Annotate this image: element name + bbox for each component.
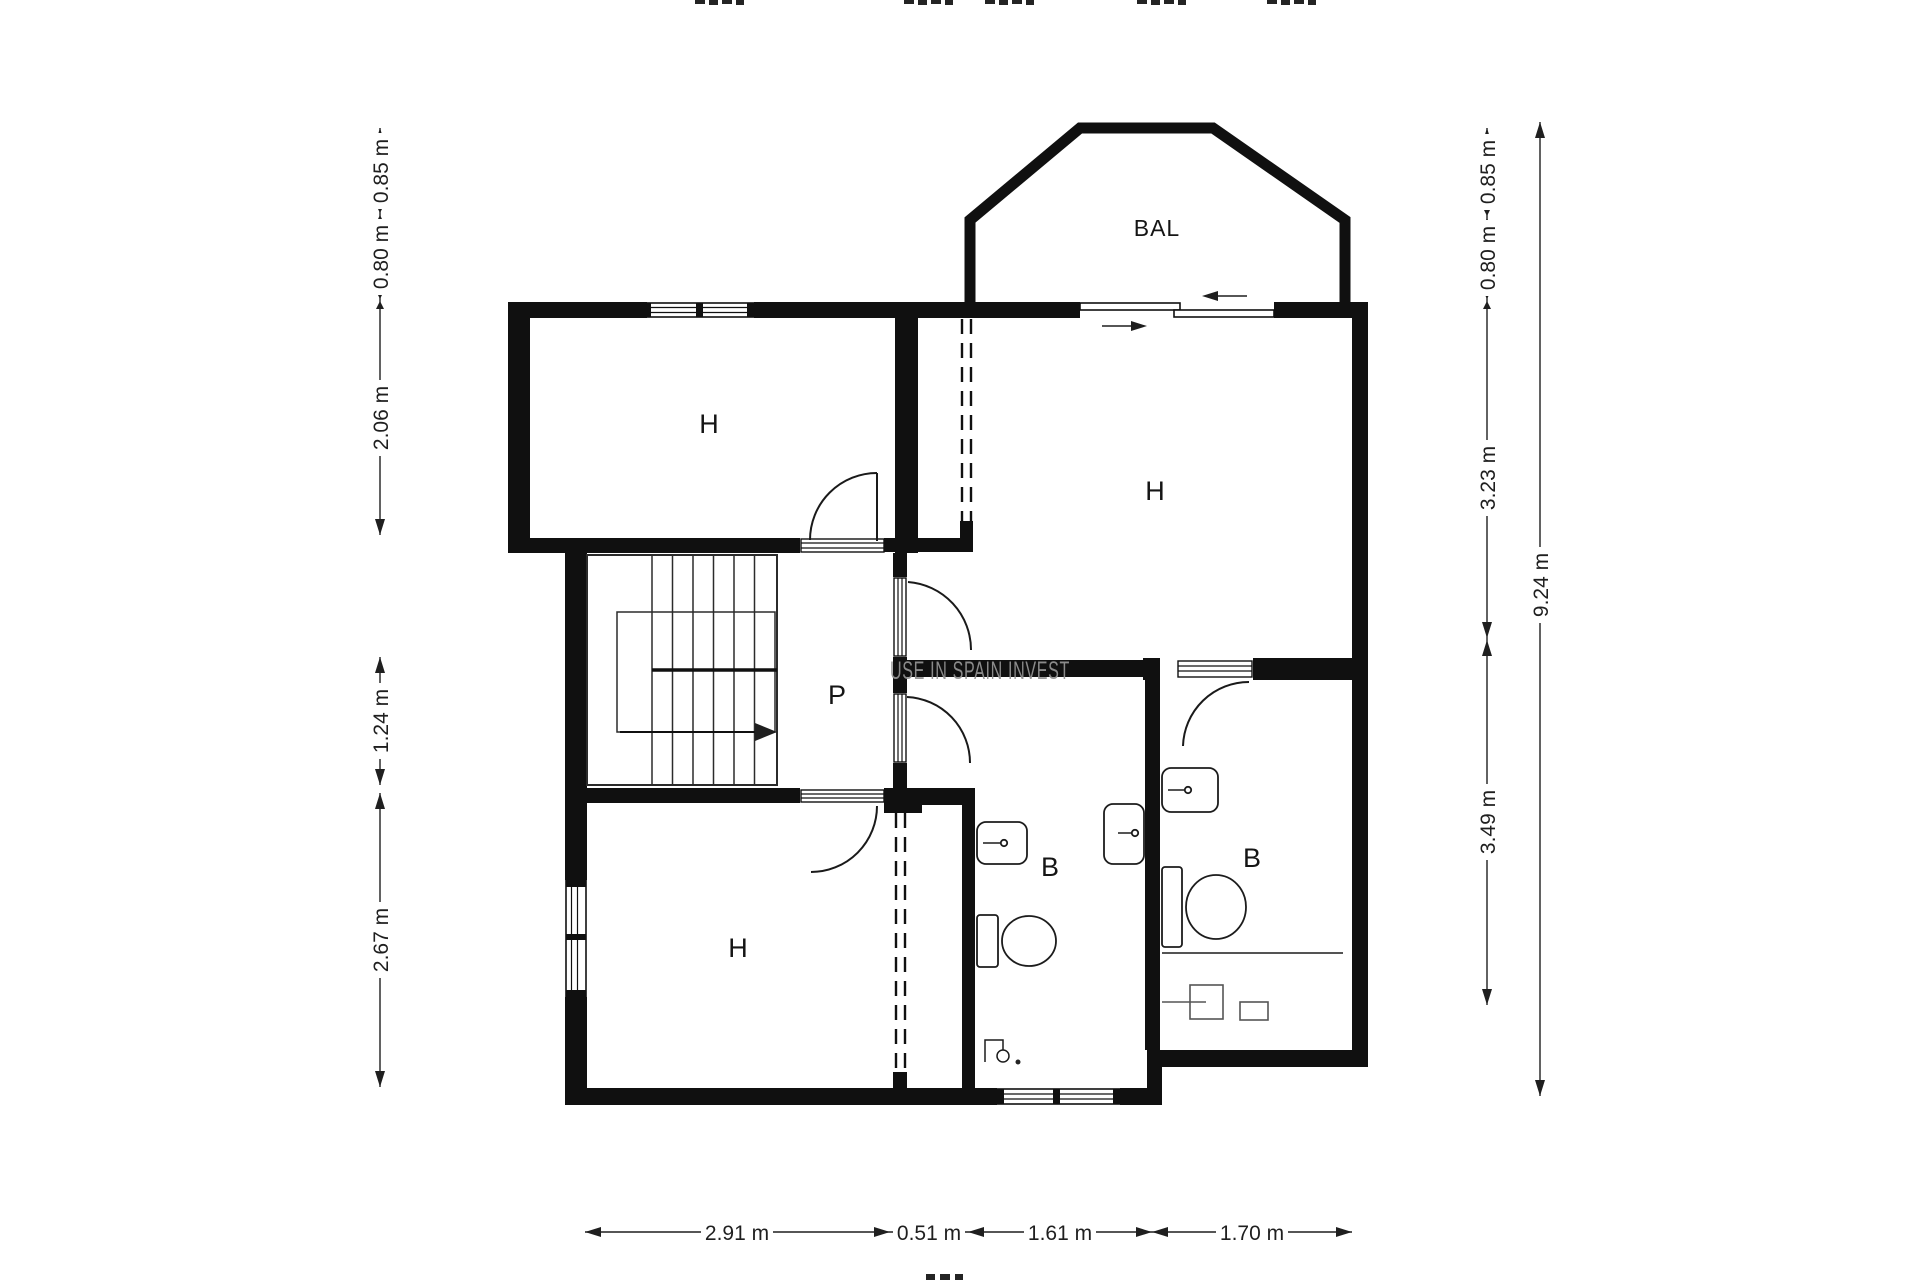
dimension-label: 1.61 m	[1028, 1222, 1092, 1245]
room-label-bathroom-right: B	[1243, 843, 1261, 873]
dimension-label: 1.24 m	[370, 689, 393, 753]
cropped-label-fragment	[1137, 0, 1186, 5]
door-sill	[894, 694, 906, 762]
dimension-column-right-overall: 9.24 m	[1526, 122, 1554, 1096]
dimension-label: 0.85 m	[370, 139, 393, 203]
sink-icon	[1162, 768, 1218, 812]
toilet-icon	[977, 915, 1056, 967]
dimension-label: 3.23 m	[1477, 446, 1500, 510]
dimension-column-right: 0.85 m 0.80 m 3.23 m 3.49 m	[1473, 128, 1501, 1005]
dimension-row-bottom: 2.91 m 0.51 m 1.61 m 1.70 m	[585, 1219, 1352, 1245]
toilet-icon	[1162, 867, 1246, 947]
dimension-label: 3.49 m	[1477, 790, 1500, 854]
cropped-label-fragment	[695, 0, 744, 5]
door-sill	[1178, 661, 1252, 677]
room-label-bathroom-middle: B	[1041, 852, 1059, 882]
door-arc	[811, 806, 877, 872]
door-sill	[801, 790, 884, 802]
room-label-balcony: BAL	[1134, 215, 1180, 241]
door-arc	[907, 697, 970, 763]
dimension-label: 1.70 m	[1220, 1222, 1284, 1245]
dimension-label: 0.80 m	[370, 225, 393, 289]
door-sill	[801, 539, 884, 552]
window-bathroom-bottom	[997, 1089, 1120, 1104]
appliance-icon	[1240, 1002, 1268, 1020]
sliding-balcony-door	[1080, 291, 1274, 331]
staircase	[587, 555, 777, 785]
dimension-label: 2.06 m	[370, 386, 393, 450]
bathroom-middle-fixtures	[977, 804, 1144, 1065]
window-top-left-room	[644, 303, 754, 317]
room-label-hallway: P	[828, 680, 846, 710]
wardrobe-dashed-front-bottom	[896, 813, 905, 1085]
floor-plan-canvas: H H H P B B BAL USE IN SPAIN INVEST 0.85…	[0, 0, 1920, 1280]
room-label-bedroom-bottom-left: H	[728, 933, 748, 963]
door-arc	[1183, 682, 1249, 746]
cropped-label-fragment	[904, 0, 953, 5]
walls	[508, 302, 1368, 1105]
room-label-bedroom-top-right: H	[1145, 476, 1165, 506]
cropped-label-fragment	[985, 0, 1034, 5]
shower-tap-icon	[985, 1040, 1021, 1065]
dimension-label: 9.24 m	[1530, 553, 1553, 617]
room-label-bedroom-top-left: H	[699, 409, 719, 439]
dimension-label: 0.51 m	[897, 1222, 961, 1245]
dimension-label: 2.91 m	[705, 1222, 769, 1245]
sink-icon	[1104, 804, 1144, 864]
bathroom-right-fixtures	[1162, 768, 1343, 1020]
door-arc	[908, 582, 971, 650]
stair-direction-arrow-icon	[755, 723, 777, 741]
door-arc	[810, 473, 877, 541]
cropped-label-fragment	[1267, 0, 1316, 5]
window-lower-left-room	[566, 880, 586, 997]
cropped-dimension-fragments-top	[695, 0, 1316, 5]
dimension-label: 2.67 m	[370, 908, 393, 972]
watermark: USE IN SPAIN INVEST	[890, 657, 1070, 685]
cropped-dimension-fragment-bottom	[926, 1274, 963, 1280]
door-sill	[894, 578, 906, 656]
dimension-column-left: 0.85 m 0.80 m 2.06 m 1.24 m 2.67 m	[366, 128, 394, 1087]
slide-arrow-right-icon	[1131, 321, 1147, 331]
floor-plan-drawing: H H H P B B BAL USE IN SPAIN INVEST 0.85…	[0, 0, 1920, 1280]
slide-arrow-left-icon	[1202, 291, 1218, 301]
wardrobe-dashed-front-top	[962, 319, 971, 521]
bidet-icon	[977, 822, 1027, 864]
washing-machine-icon	[1162, 985, 1223, 1019]
dimension-label: 0.85 m	[1477, 140, 1500, 204]
dimension-label: 0.80 m	[1477, 226, 1500, 290]
